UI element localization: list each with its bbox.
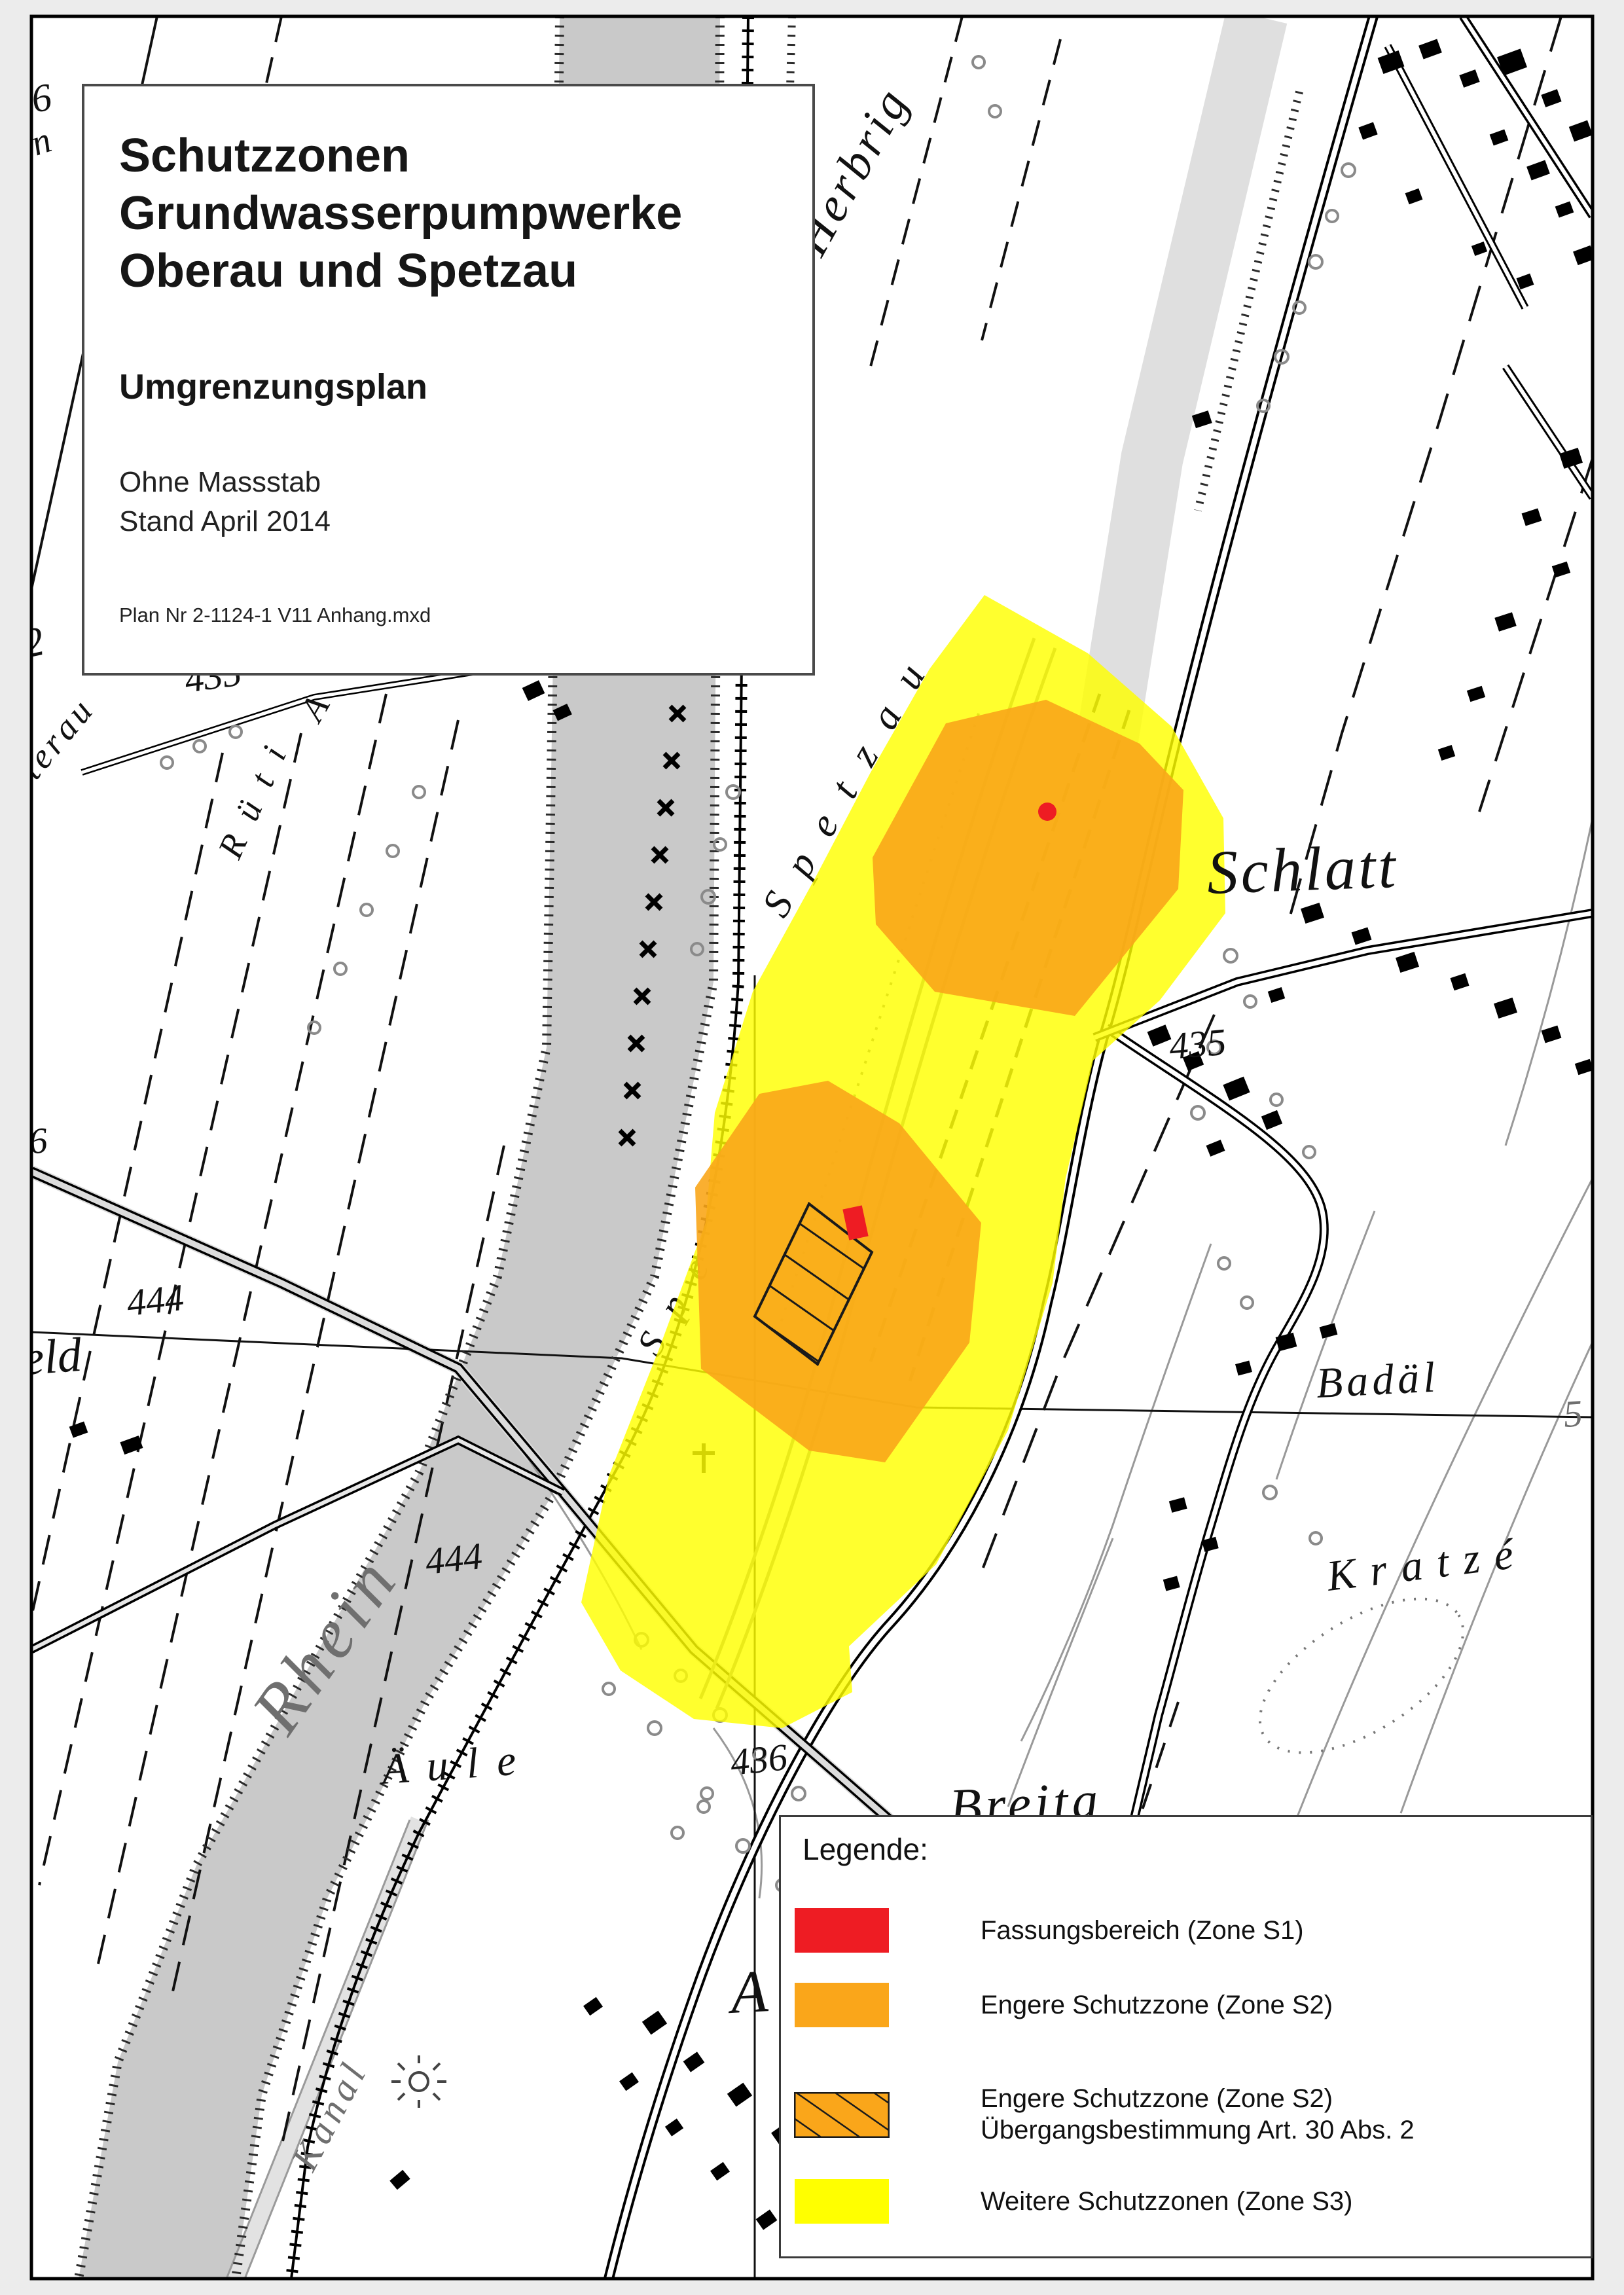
elev-444-upper: 444 [125,1276,186,1324]
label-schlatt: Schlatt [1206,831,1399,907]
legend: Legende: Fassungsbereich (Zone S1) Enger… [779,1815,1593,2258]
legend-label-s3: Weitere Schutzzonen (Zone S3) [981,2186,1352,2217]
zone-s1-dot [1038,803,1056,821]
elev-435-right: 435 [1167,1021,1227,1068]
title-line-1: Schutzzonen [119,127,682,185]
legend-item-zone-s2-transitional: Engere Schutzzone (Zone S2) Übergangsbes… [794,2079,1566,2151]
title-line-3: Oberau und Spetzau [119,242,682,300]
title-box: Schutzzonen Grundwasserpumpwerke Oberau … [82,84,815,676]
map-subtitle: Umgrenzungsplan [119,367,427,407]
legend-heading: Legende: [803,1832,928,1867]
zone-s3-swatch [794,2178,890,2224]
legend-item-zone-s2: Engere Schutzzone (Zone S2) [794,1982,1566,2028]
title-line-2: Grundwasserpumpwerke [119,185,682,242]
page: { "page": {"background": "#ececec", "map… [0,0,1624,2295]
legend-item-zone-s3: Weitere Schutzzonen (Zone S3) [794,2178,1566,2224]
elev-444-lower: 444 [424,1534,484,1583]
zone-s2-hatched-swatch [794,2092,890,2138]
elev-436: 436 [729,1735,789,1784]
legend-label-s2-transitional: Engere Schutzzone (Zone S2) Übergangsbes… [981,2083,1415,2146]
zone-s1-swatch [794,1907,890,1953]
note-date: Stand April 2014 [119,502,331,541]
plan-number: Plan Nr 2-1124-1 V11 Anhang.mxd [119,604,431,627]
label-badael: Badäl [1315,1353,1440,1407]
legend-label-s2: Engere Schutzzone (Zone S2) [981,1989,1333,2021]
note-scale: Ohne Massstab [119,463,331,502]
legend-label-s1: Fassungsbereich (Zone S1) [981,1915,1304,1946]
elev-5: 5 [1562,1392,1583,1436]
label-a-fragment: A [725,1957,770,2026]
legend-item-zone-s1: Fassungsbereich (Zone S1) [794,1907,1566,1953]
zone-s2-swatch [794,1982,890,2028]
map-notes: Ohne Massstab Stand April 2014 [119,463,331,541]
map-title: Schutzzonen Grundwasserpumpwerke Oberau … [119,127,682,300]
